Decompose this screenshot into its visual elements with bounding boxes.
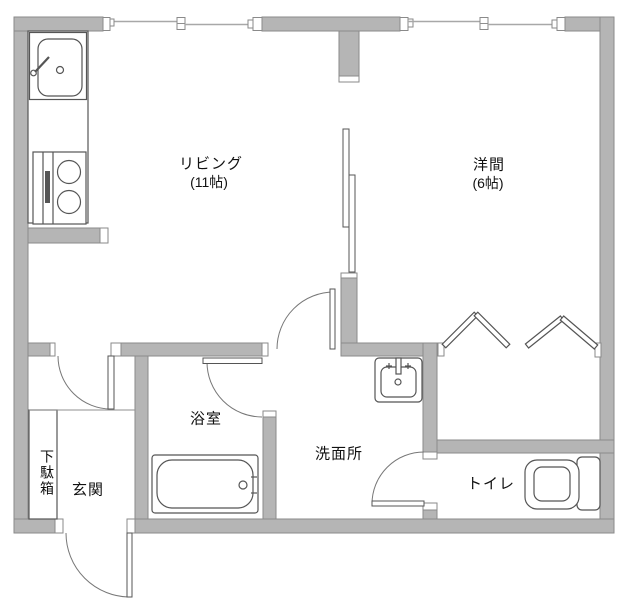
bathtub-outline xyxy=(152,455,258,513)
bathtub xyxy=(152,455,258,513)
window1-right-cap xyxy=(253,18,262,31)
sliding-door-panel-1 xyxy=(343,129,349,227)
window1-left-stop xyxy=(110,19,114,26)
cap-front-door-left xyxy=(55,519,63,533)
washbasin-faucet-icon xyxy=(396,358,401,374)
wall-mid-left-stub xyxy=(28,343,50,356)
cap-toilet-door-bottom xyxy=(423,503,437,510)
wall-right-outer xyxy=(600,17,614,533)
toilet-door-leaf xyxy=(372,501,424,506)
sliding-door-panel-2 xyxy=(349,175,355,272)
toilet-door-arc xyxy=(372,452,424,504)
wall-top-stub-cap xyxy=(339,76,359,82)
western-room-size: (6帖) xyxy=(472,173,503,193)
entrance-label: 玄関 xyxy=(72,479,104,500)
cap-front-door-right xyxy=(127,519,135,533)
wall-bathroom-right-stub xyxy=(263,417,276,520)
stove-unit xyxy=(33,152,86,224)
hall-door-arc xyxy=(58,356,111,409)
bathroom-door-leaf xyxy=(203,358,262,364)
wall-left-outer xyxy=(14,17,28,533)
living-washroom-door-arc xyxy=(277,292,334,349)
wall-washroom-right-lower xyxy=(423,509,437,520)
hall-door-leaf xyxy=(108,356,114,409)
closet-bifold-panel-1a xyxy=(442,312,478,348)
closet-bifold-panel-1b xyxy=(474,312,510,348)
closet-bifold-panel-2b xyxy=(560,316,597,349)
window2-left-cap xyxy=(400,18,408,31)
wall-kitchen-stub xyxy=(28,228,100,243)
washroom-label: 洗面所 xyxy=(315,443,363,464)
western-room-label: 洋間 xyxy=(473,154,505,175)
window2-left-stop xyxy=(408,19,413,27)
cap-bath-stub-top xyxy=(263,411,276,417)
cap-hall-door-left xyxy=(50,343,55,356)
front-door-leaf xyxy=(127,533,132,597)
wall-top-stub xyxy=(339,31,359,76)
cap-toilet-door-top xyxy=(423,452,437,459)
washbasin xyxy=(375,358,422,402)
bathroom-label: 浴室 xyxy=(190,408,222,429)
living-washroom-door-leaf xyxy=(330,289,335,349)
window2-end-stop xyxy=(552,20,557,28)
wall-sliding-stub xyxy=(341,278,357,344)
kitchen-counter xyxy=(28,31,88,224)
toilet-tank xyxy=(577,457,600,510)
wall-closet-floor xyxy=(437,440,614,453)
cap-bath-corner xyxy=(262,343,268,356)
floor-plan-drawing xyxy=(0,0,640,610)
toilet-fixture xyxy=(525,457,600,510)
window2-right-cap xyxy=(557,18,565,31)
wall-bottom-left xyxy=(14,519,55,533)
living-room-label: リビング xyxy=(179,153,243,174)
floor-plan: リビング (11帖) 洋間 (6帖) 浴室 洗面所 トイレ 玄関 下駄箱 xyxy=(0,0,640,610)
wall-washroom-right-upper xyxy=(423,343,437,452)
wall-top-b xyxy=(262,17,400,31)
wall-entrance-divider xyxy=(135,356,148,520)
shoe-cabinet-label: 下駄箱 xyxy=(37,449,57,497)
stove-grill-icon xyxy=(45,171,50,203)
cap-hall-door-hinge xyxy=(111,343,121,356)
wall-top-a xyxy=(14,17,103,31)
wall-bottom-main xyxy=(135,519,614,533)
closet-bifold-panel-2a xyxy=(525,316,563,348)
window1-left-cap xyxy=(103,18,110,31)
toilet-label: トイレ xyxy=(467,473,515,494)
wall-kitchen-stub-cap xyxy=(100,228,108,243)
front-door-arc xyxy=(66,533,130,597)
living-room-size: (11帖) xyxy=(190,172,228,192)
wall-mid-main xyxy=(121,343,262,356)
wall-sliding-stub-cap xyxy=(341,273,357,278)
window1-end-stop xyxy=(248,20,253,28)
